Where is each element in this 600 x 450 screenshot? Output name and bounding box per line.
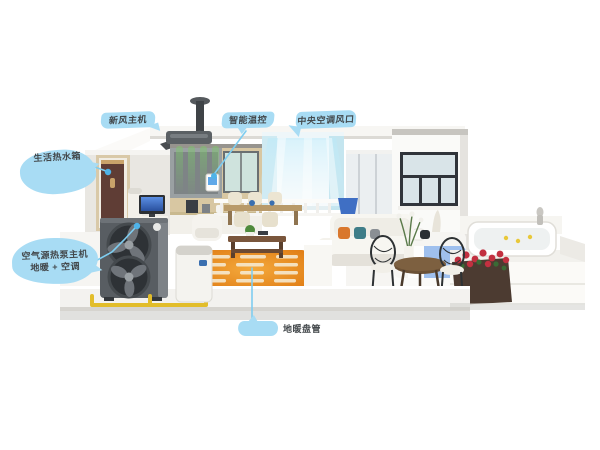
living-half-wall: [304, 240, 332, 292]
floor-heating-label: 地暖盘管: [283, 322, 321, 335]
fan-bottom: [109, 257, 149, 297]
heat-pump-outdoor-unit: [100, 218, 168, 301]
scene-stage: 新风主机 智能温控 中央空调风口 生活热水箱 空气源热泵主机 地暖 + 空调 地…: [0, 0, 600, 450]
fresh-air-unit-label: 新风主机: [108, 114, 147, 125]
callout-thermostat: 智能温控: [221, 112, 274, 129]
callout-floor-heating: 地暖盘管: [238, 321, 321, 336]
heat-pump-label-line1: 空气源热泵主机: [21, 249, 88, 261]
heat-pump-label-line2: 地暖 + 空调: [30, 261, 80, 273]
callout-fresh-air-unit: 新风主机: [100, 111, 156, 129]
statue-figurine: [537, 207, 544, 225]
fresh-air-ceiling-unit: [166, 131, 212, 144]
sofa: [318, 214, 414, 266]
house-illustration: [0, 0, 600, 450]
armchair: [192, 214, 222, 241]
thermostat-label: 智能温控: [229, 115, 268, 126]
hot-water-label: 生活热水箱: [33, 151, 81, 163]
floor-heating-balloon: [237, 321, 279, 336]
buffer-tank: [176, 246, 212, 302]
callout-central-ac: 中央空调风口: [295, 110, 356, 129]
central-ac-label: 中央空调风口: [297, 114, 355, 126]
